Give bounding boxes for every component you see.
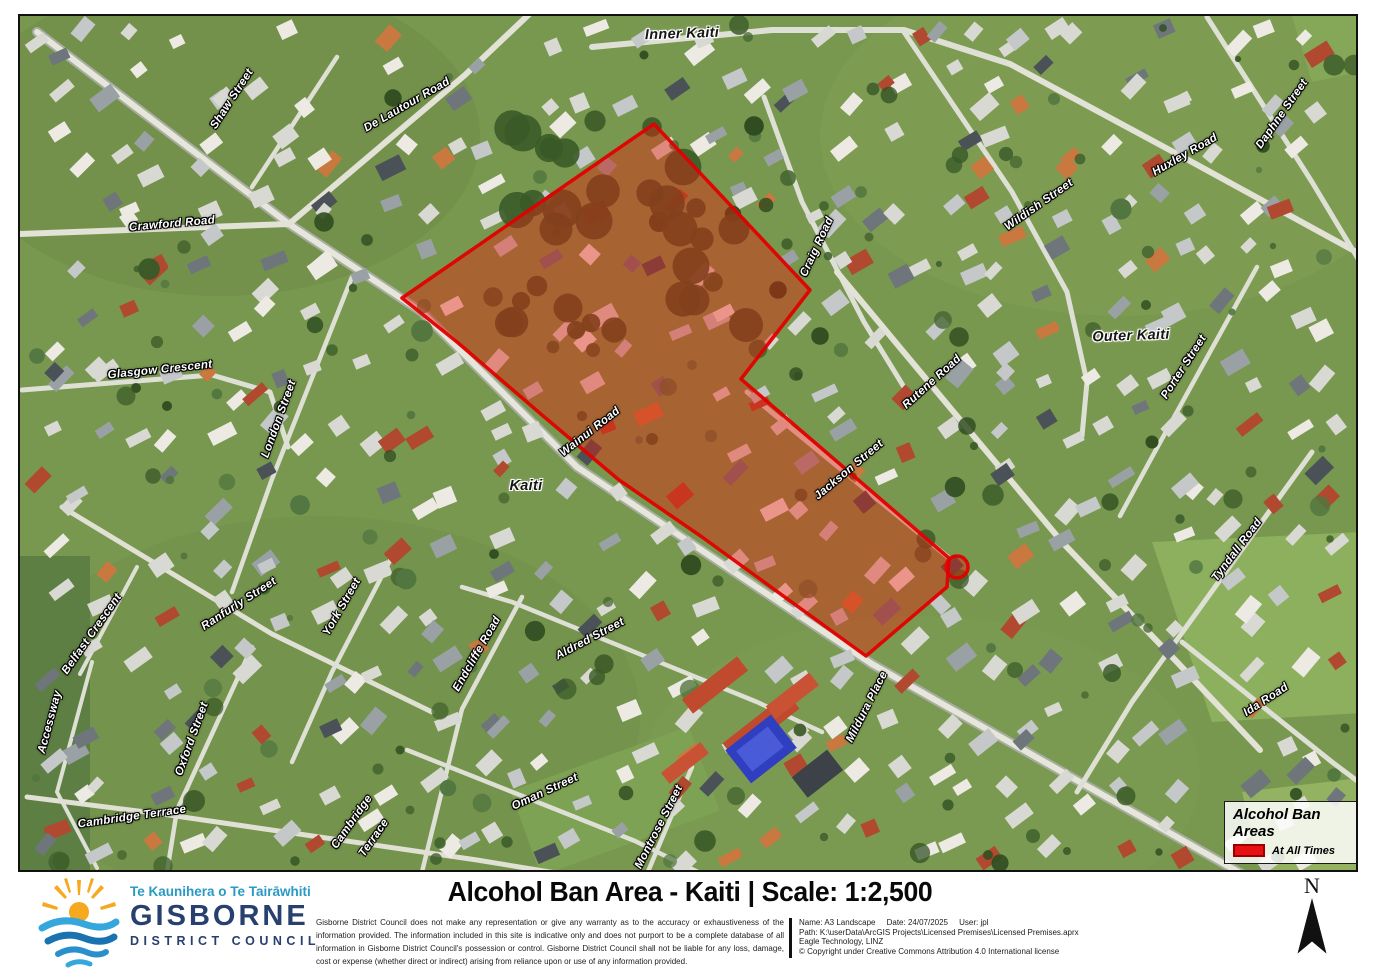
- disclaimer-text: Gisborne District Council does not make …: [316, 916, 784, 968]
- legend-item-at-all-times: At All Times: [1233, 844, 1358, 857]
- map-metadata: Name: A3 Landscape Date: 24/07/2025 User…: [799, 918, 1099, 956]
- footer-divider: [789, 918, 792, 958]
- north-arrow: N: [1286, 874, 1338, 970]
- sun-icon: [42, 878, 116, 922]
- logo-gisborne: GISBORNE: [130, 900, 320, 933]
- footer-bar: Te Kaunihera o Te Tairāwhiti GISBORNE DI…: [0, 872, 1377, 974]
- north-arrow-icon: [1295, 898, 1329, 956]
- meta-path: Path: K:\userData\ArcGIS Projects\Licens…: [799, 928, 1099, 938]
- map-page: Shaw StreetDe Lautour RoadCrawford RoadG…: [0, 0, 1377, 974]
- legend-rows: At All Times: [1233, 844, 1358, 857]
- legend-item-label: At All Times: [1272, 845, 1335, 857]
- gisborne-council-logo-icon: [34, 878, 124, 970]
- meta-name-date-user: Name: A3 Landscape Date: 24/07/2025 User…: [799, 918, 1099, 928]
- legend: Alcohol Ban Areas At All Times: [1224, 801, 1358, 864]
- logo-district-council: DISTRICT COUNCIL: [130, 934, 320, 948]
- gisborne-council-logo-text: Te Kaunihera o Te Tairāwhiti GISBORNE DI…: [130, 884, 320, 948]
- meta-source: Eagle Technology, LINZ: [799, 937, 1099, 947]
- map-title: Alcohol Ban Area - Kaiti | Scale: 1:2,50…: [339, 876, 1042, 908]
- logo-maori-name: Te Kaunihera o Te Tairāwhiti: [130, 884, 320, 899]
- meta-copyright: © Copyright under Creative Commons Attri…: [799, 947, 1099, 957]
- legend-title: Alcohol Ban Areas: [1233, 806, 1358, 840]
- map-canvas: Shaw StreetDe Lautour RoadCrawford RoadG…: [18, 14, 1358, 872]
- aerial-imagery: [20, 16, 1358, 872]
- wave-icon: [42, 921, 116, 965]
- north-label: N: [1286, 874, 1338, 898]
- legend-swatch: [1233, 844, 1265, 857]
